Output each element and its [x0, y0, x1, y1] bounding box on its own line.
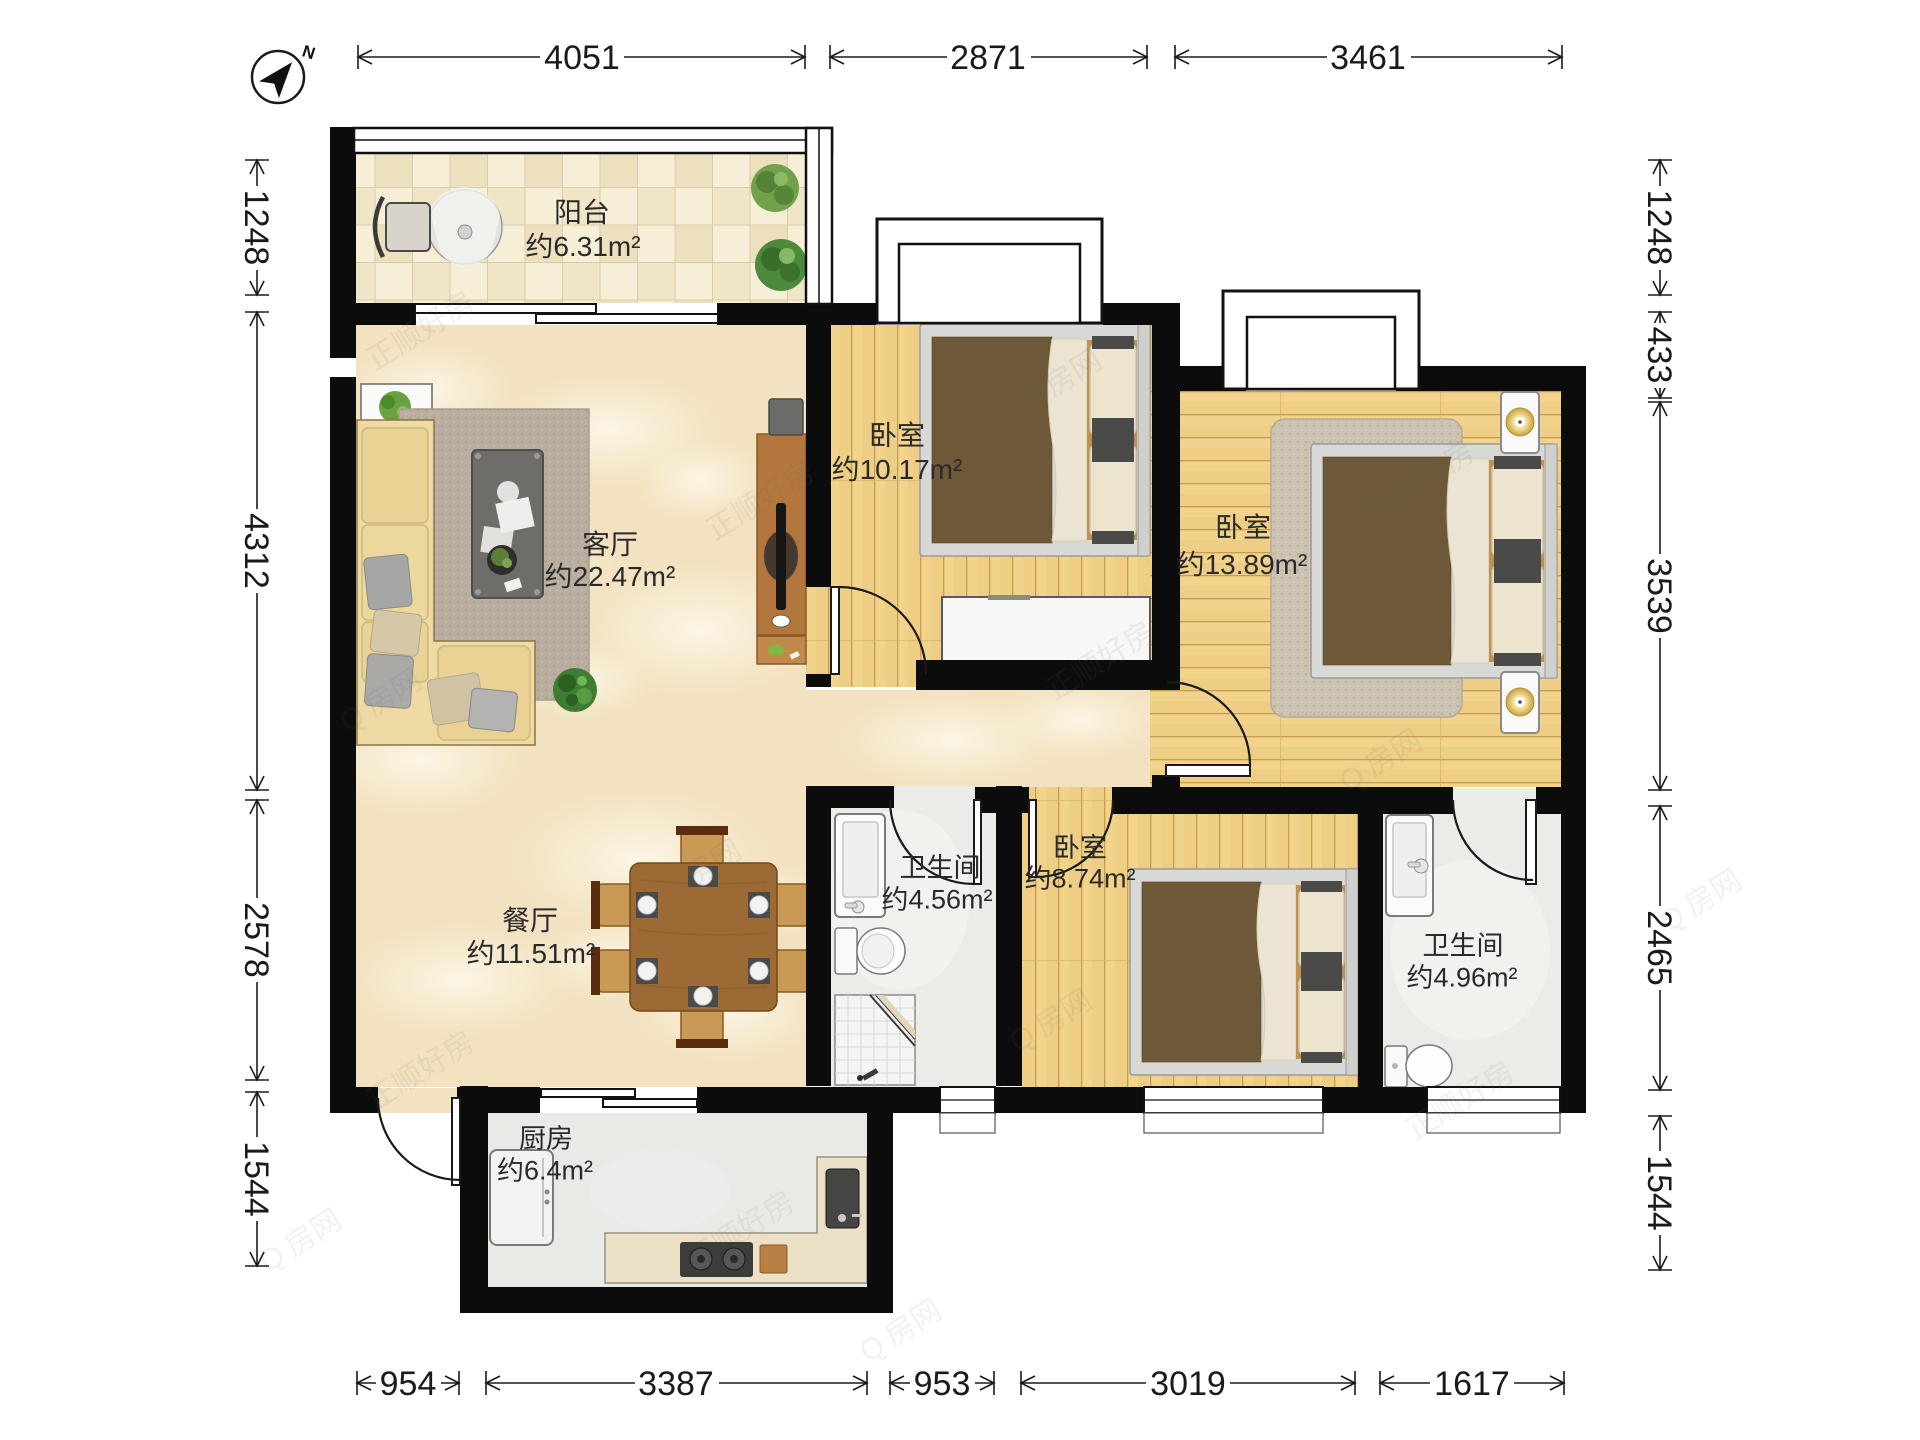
svg-text:8.74m²: 8.74m² — [1052, 864, 1136, 894]
svg-text:22.47m²: 22.47m² — [573, 561, 676, 592]
svg-text:4.56m²: 4.56m² — [909, 885, 993, 915]
svg-text:954: 954 — [380, 1365, 437, 1403]
svg-text:3019: 3019 — [1150, 1365, 1226, 1403]
svg-text:953: 953 — [914, 1365, 971, 1403]
svg-text:2578: 2578 — [237, 902, 275, 978]
svg-text:3387: 3387 — [638, 1365, 714, 1403]
svg-text:1248: 1248 — [1640, 190, 1678, 266]
svg-text:11.51m²: 11.51m² — [495, 938, 596, 969]
svg-text:4051: 4051 — [544, 39, 620, 77]
svg-text:1544: 1544 — [237, 1141, 275, 1217]
svg-text:1248: 1248 — [237, 190, 275, 266]
svg-text:433: 433 — [1640, 327, 1678, 384]
svg-text:10.17m²: 10.17m² — [860, 454, 963, 485]
svg-text:1617: 1617 — [1434, 1365, 1510, 1403]
svg-text:6.4m²: 6.4m² — [524, 1156, 593, 1186]
svg-text:6.31m²: 6.31m² — [553, 231, 640, 262]
svg-text:13.89m²: 13.89m² — [1205, 549, 1308, 580]
svg-text:1544: 1544 — [1640, 1155, 1678, 1231]
svg-text:3461: 3461 — [1330, 39, 1406, 77]
svg-text:3539: 3539 — [1640, 558, 1678, 634]
svg-text:2871: 2871 — [950, 39, 1026, 77]
svg-text:4312: 4312 — [237, 513, 275, 589]
svg-text:4.96m²: 4.96m² — [1434, 963, 1518, 993]
